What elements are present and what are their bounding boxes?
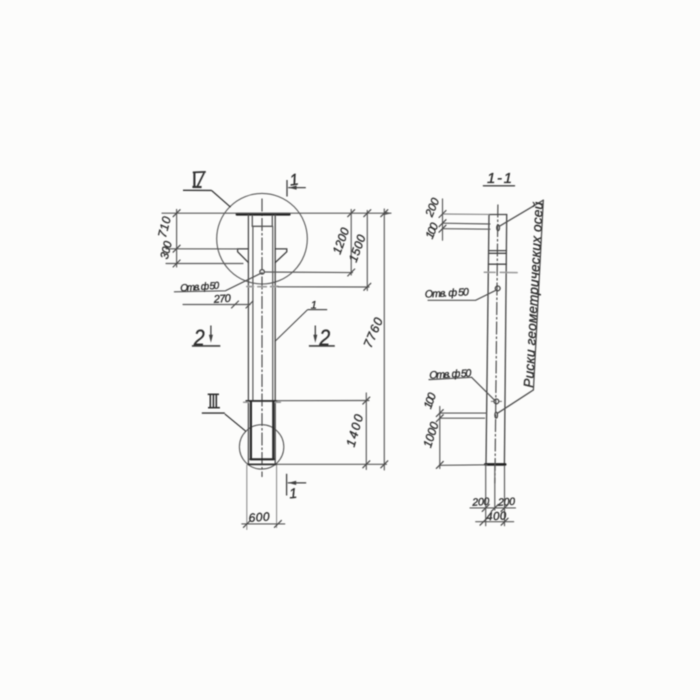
- svg-text:1000: 1000: [420, 420, 441, 449]
- svg-text:Отв. ф 50: Отв. ф 50: [429, 367, 472, 381]
- svg-text:Отв. ф 50: Отв. ф 50: [180, 280, 220, 295]
- svg-text:100: 100: [424, 221, 442, 241]
- svg-text:2: 2: [193, 324, 205, 350]
- svg-text:1: 1: [289, 172, 300, 190]
- svg-text:1: 1: [288, 485, 297, 502]
- svg-text:100: 100: [422, 391, 439, 411]
- svg-text:400: 400: [486, 510, 507, 523]
- svg-text:710: 710: [155, 215, 174, 239]
- svg-text:1-1: 1-1: [487, 170, 512, 187]
- svg-text:200: 200: [471, 496, 490, 509]
- svg-text:Риски геометрических осей: Риски геометрических осей: [521, 201, 546, 388]
- svg-text:200: 200: [497, 496, 516, 509]
- svg-text:300: 300: [159, 240, 175, 261]
- svg-text:1: 1: [311, 300, 317, 312]
- svg-text:7760: 7760: [361, 316, 386, 350]
- svg-text:600: 600: [248, 510, 270, 525]
- svg-text:270: 270: [212, 293, 232, 306]
- svg-text:1400: 1400: [344, 413, 367, 449]
- svg-text:2: 2: [318, 324, 330, 350]
- svg-text:Отв. ф 50: Отв. ф 50: [425, 286, 470, 300]
